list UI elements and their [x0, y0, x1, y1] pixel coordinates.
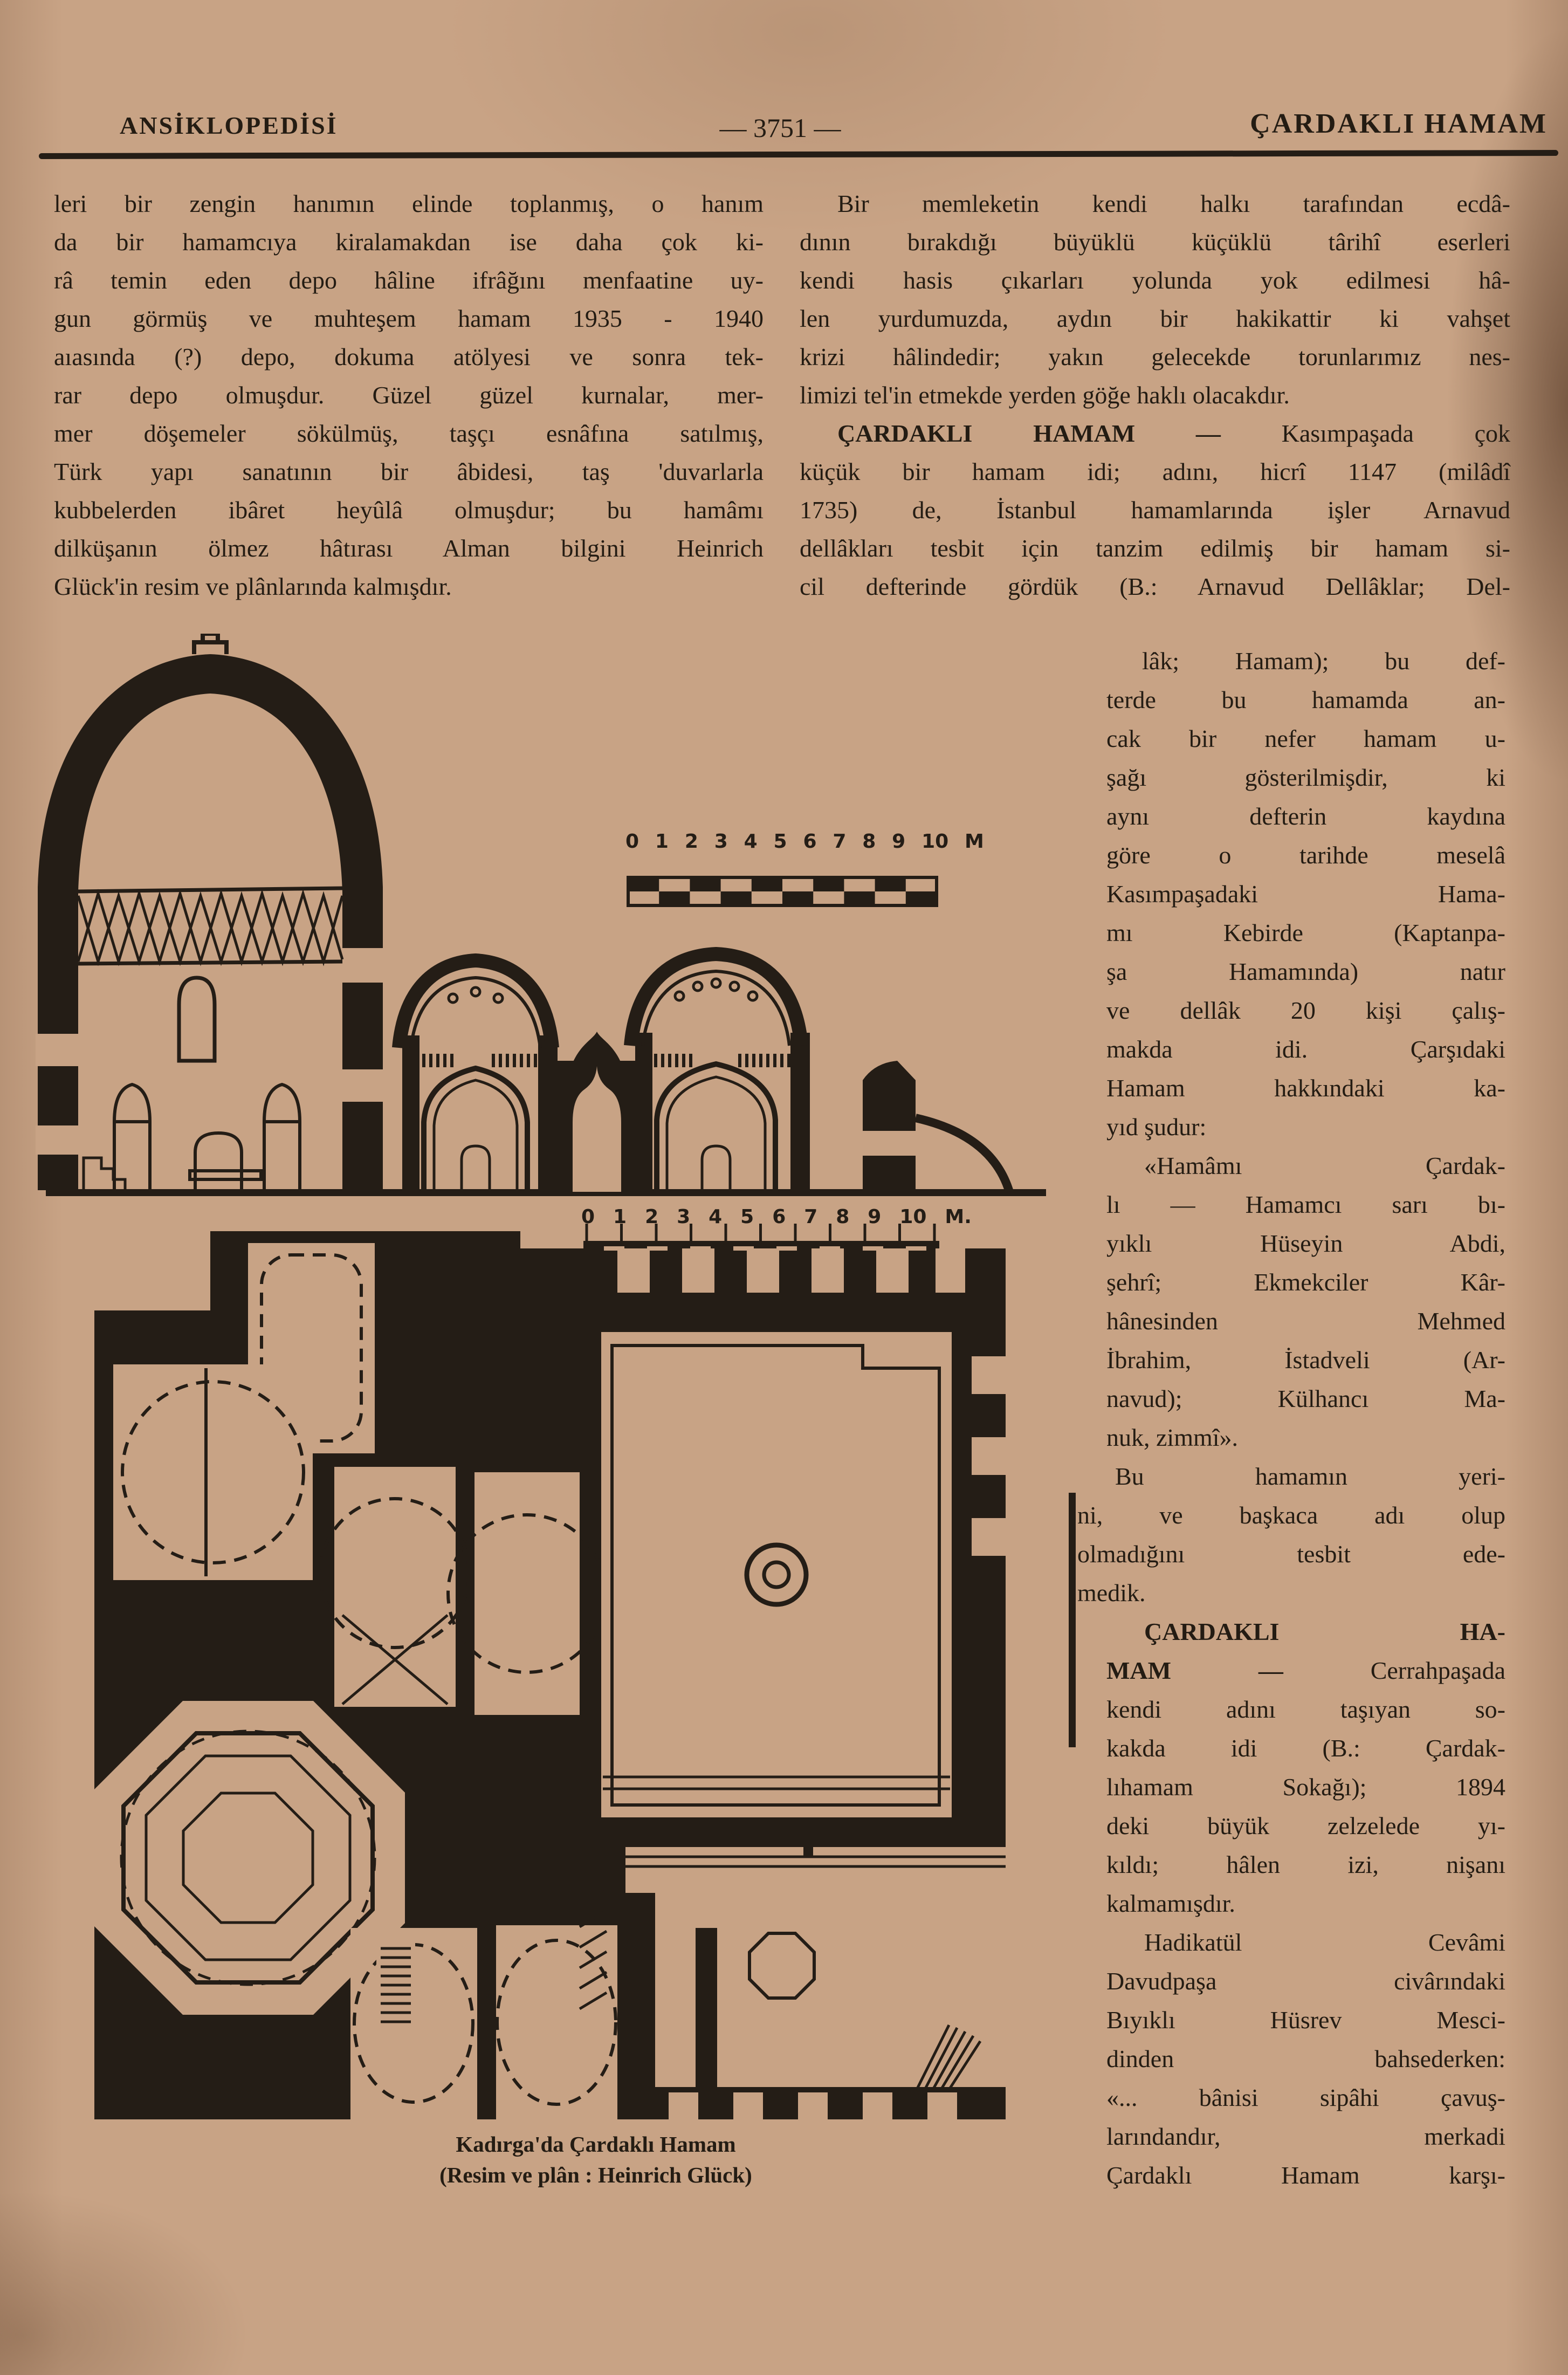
text-line: küçük bir hamam idi; adını, hicrî 1147 (…	[800, 452, 1510, 491]
scale-label: 1	[655, 830, 669, 853]
text-line: nuk, zimmî».	[1106, 1418, 1505, 1457]
scale-label: 6	[803, 830, 816, 853]
text-line: dının bırakdığı büyüklü küçüklü târihî e…	[800, 223, 1510, 261]
text-line: gun görmüş ve muhteşem hamam 1935 - 1940	[54, 299, 764, 338]
text-line: İbrahim, İstadveli (Ar-	[1106, 1341, 1505, 1379]
text-line: makda idi. Çarşıdaki	[1106, 1030, 1505, 1069]
text-line: mer döşemeler sökülmüş, taşçı esnâfına s…	[54, 414, 764, 452]
text-line: mı Kebirde (Kaptanpa-	[1106, 914, 1505, 952]
hamam-figure	[32, 634, 1073, 2122]
page-number: — 3751 —	[672, 112, 888, 143]
scale-label: 0	[581, 1206, 595, 1228]
scale-label: 1	[613, 1206, 627, 1228]
figure-caption-line1: Kadırga'da Çardaklı Hamam	[324, 2129, 868, 2160]
text-line: rar depo olmuşdur. Güzel güzel kurnalar,…	[54, 376, 764, 414]
text-line: deki büyük zelzelede yı-	[1106, 1807, 1505, 1845]
text-line: dilküşanın ölmez hâtırası Alman bilgini …	[54, 529, 764, 567]
text-line: dellâkları tesbit için tanzim edilmiş bi…	[800, 529, 1510, 567]
text-line: kubbelerden ibâret heyûlâ olmuşdur; bu h…	[54, 491, 764, 529]
right-column-narrow: lâk; Hamam); bu def-terde bu hamamda an-…	[1106, 642, 1505, 2195]
scale-label: 3	[714, 830, 728, 853]
text-line: dinden bahsederken:	[1106, 2040, 1505, 2078]
scale-label: 2	[645, 1206, 658, 1228]
encyclopedia-page: { "header": { "left_title": "ANSİKLOPEDİ…	[0, 0, 1568, 2375]
text-line: Glück'in resim ve plânlarında kalmışdır.	[54, 567, 764, 606]
text-line: limizi tel'in etmekde yerden göğe haklı …	[800, 376, 1510, 414]
text-line: şağı gösterilmişdir, ki	[1106, 758, 1505, 797]
text-line: kendi adını taşıyan so-	[1106, 1690, 1505, 1729]
text-line: yıklı Hüseyin Abdi,	[1106, 1224, 1505, 1263]
scale-label: 7	[833, 830, 846, 853]
scale-bar-plan-numbers: 012345678910M.	[581, 1206, 972, 1228]
text-line: len yurdumuzda, aydın bir hakikattir ki …	[800, 299, 1510, 338]
text-line: Hamam hakkındaki ka-	[1106, 1069, 1505, 1108]
scale-label: 9	[868, 1206, 881, 1228]
text-line: «Hamâmı Çardak-	[1106, 1147, 1505, 1185]
scale-label: 9	[892, 830, 905, 853]
header-left-title: ANSİKLOPEDİSİ	[120, 111, 338, 140]
text-line: Bir memleketin kendi halkı tarafından ec…	[800, 184, 1510, 223]
text-line: aynı defterin kaydına	[1106, 797, 1505, 836]
text-line: kakda idi (B.: Çardak-	[1106, 1729, 1505, 1768]
text-line: kalmamışdır.	[1106, 1884, 1505, 1923]
scale-bar-section	[628, 877, 937, 905]
hamam-drawing	[32, 634, 1073, 2122]
text-line: aıasında (?) depo, dokuma atölyesi ve so…	[54, 338, 764, 376]
text-line: olmadığını tesbit ede-	[1077, 1535, 1505, 1574]
text-line: da bir hamamcıya kiralamakdan ise daha ç…	[54, 223, 764, 261]
scale-label: 7	[804, 1206, 817, 1228]
scale-label: 4	[709, 1206, 722, 1228]
text-line: kıldı; hâlen izi, nişanı	[1106, 1845, 1505, 1884]
text-line: Türk yapı sanatının bir âbidesi, taş 'du…	[54, 452, 764, 491]
scale-label: 5	[774, 830, 787, 853]
scale-label: 3	[677, 1206, 690, 1228]
text-line: Davudpaşa civârındaki	[1106, 1962, 1505, 2001]
text-line: Çardaklı Hamam karşı-	[1106, 2156, 1505, 2195]
scale-label: 4	[744, 830, 758, 853]
hamam-floor-plan	[91, 1205, 1006, 2119]
text-line: krizi hâlindedir; yakın gelecekde torunl…	[800, 338, 1510, 376]
text-line: lıhamam Sokağı); 1894	[1106, 1768, 1505, 1807]
text-line: hânesinden Mehmed	[1106, 1302, 1505, 1341]
right-column-wide: Bir memleketin kendi halkı tarafından ec…	[800, 184, 1510, 606]
text-line: râ temin eden depo hâline ifrâğını menfa…	[54, 261, 764, 299]
scale-label: 8	[862, 830, 876, 853]
text-line: terde bu hamamda an-	[1106, 681, 1505, 719]
text-line: ve dellâk 20 kişi çalış-	[1106, 991, 1505, 1030]
text-line: cak bir nefer hamam u-	[1106, 719, 1505, 758]
text-line: lâk; Hamam); bu def-	[1142, 642, 1505, 681]
scale-label: 8	[836, 1206, 849, 1228]
text-line: ÇARDAKLI HAMAM — Kasımpaşada çok	[800, 414, 1510, 452]
text-line: «... bânisi sipâhi çavuş-	[1106, 2078, 1505, 2117]
text-line: ni, ve başkaca adı olup	[1077, 1496, 1505, 1535]
text-line: Bıyıklı Hüsrev Mesci-	[1106, 2001, 1505, 2040]
scale-bar-section-numbers: 012345678910M	[625, 830, 984, 853]
text-line: navud); Külhancı Ma-	[1106, 1379, 1505, 1418]
scale-label: M	[965, 830, 984, 853]
scale-label: 5	[740, 1206, 754, 1228]
text-line: şehrî; Ekmekciler Kâr-	[1106, 1263, 1505, 1302]
text-line: cil defterinde gördük (B.: Arnavud Dellâ…	[800, 567, 1510, 606]
text-line: kendi hasis çıkarları yolunda yok edilme…	[800, 261, 1510, 299]
text-line: MAM — Cerrahpaşada	[1106, 1651, 1505, 1690]
scale-label: 10	[921, 830, 948, 853]
text-line: medik.	[1077, 1574, 1505, 1612]
text-line: Bu hamamın yeri-	[1077, 1457, 1505, 1496]
text-line: Kasımpaşadaki Hama-	[1106, 875, 1505, 914]
scale-label: 0	[625, 830, 639, 853]
scale-label: 10	[899, 1206, 926, 1228]
text-line: 1735) de, İstanbul hamamlarında işler Ar…	[800, 491, 1510, 529]
scale-label: 2	[685, 830, 698, 853]
header-rule	[39, 150, 1558, 159]
text-line: göre o tarihde meselâ	[1106, 836, 1505, 875]
text-line: leri bir zengin hanımın elinde toplanmış…	[54, 184, 764, 223]
left-column: leri bir zengin hanımın elinde toplanmış…	[54, 184, 764, 606]
hamam-section-drawing	[36, 634, 1046, 1196]
text-line: larındandır, merkadi	[1106, 2117, 1505, 2156]
text-line: yıd şudur:	[1106, 1108, 1505, 1147]
text-line: ÇARDAKLI HA-	[1106, 1612, 1505, 1651]
text-line: lı — Hamamcı sarı bı-	[1106, 1185, 1505, 1224]
header-right-title: ÇARDAKLI HAMAM	[1250, 108, 1548, 140]
text-line: Hadikatül Cevâmi	[1106, 1923, 1505, 1962]
figure-caption-line2: (Resim ve plân : Heinrich Glück)	[324, 2160, 868, 2191]
figure-caption: Kadırga'da Çardaklı Hamam (Resim ve plân…	[324, 2129, 868, 2191]
scale-label: 6	[772, 1206, 786, 1228]
scale-label: M.	[945, 1206, 972, 1228]
text-line: şa Hamamında) natır	[1106, 952, 1505, 991]
